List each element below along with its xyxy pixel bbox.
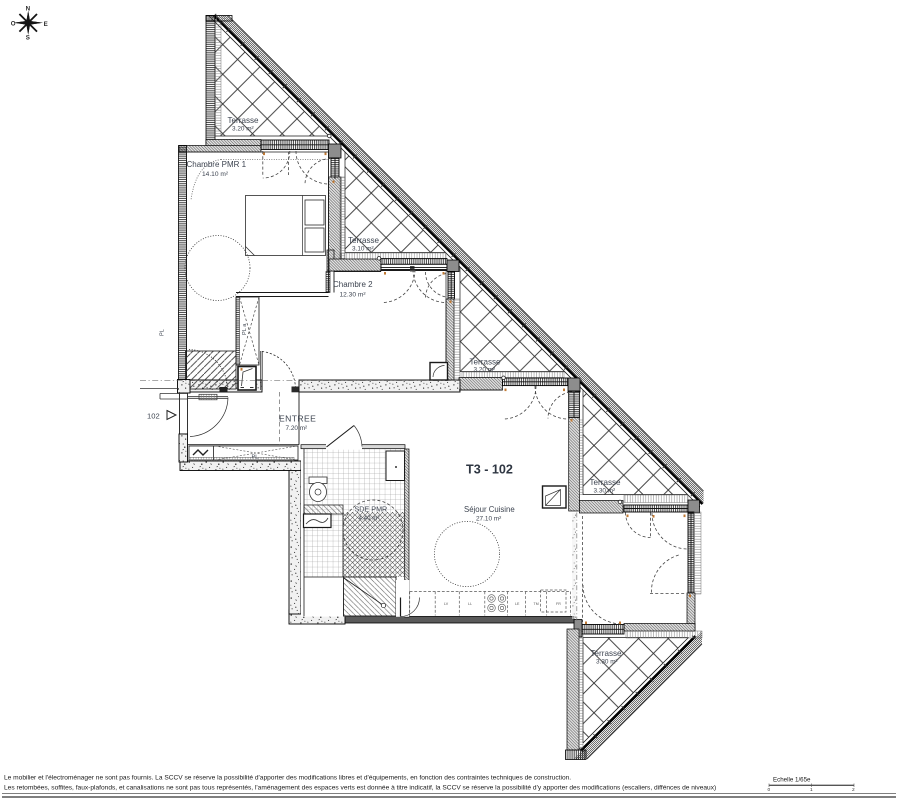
- svg-text:LV: LV: [444, 602, 449, 606]
- svg-text:SDE PMR: SDE PMR: [355, 505, 388, 514]
- svg-text:Le mobilier et l'électroménage: Le mobilier et l'électroménager ne sont …: [4, 774, 571, 781]
- svg-text:3.20 m²: 3.20 m²: [232, 126, 254, 133]
- svg-text:LL: LL: [468, 602, 472, 606]
- svg-text:12.30 m²: 12.30 m²: [340, 292, 367, 299]
- svg-text:Terrasse: Terrasse: [591, 649, 623, 658]
- svg-text:Les retombées, soffites, faux-: Les retombées, soffites, faux-plafonds, …: [4, 784, 716, 791]
- svg-text:O: O: [11, 21, 16, 28]
- svg-text:N: N: [26, 5, 31, 12]
- svg-text:ENTREE: ENTREE: [279, 414, 316, 424]
- svg-text:Chambre PMR 1: Chambre PMR 1: [187, 160, 247, 169]
- svg-text:Echelle 1/65e: Echelle 1/65e: [773, 777, 811, 784]
- svg-text:Terrasse: Terrasse: [470, 358, 502, 367]
- svg-text:E: E: [44, 21, 48, 28]
- svg-text:TM: TM: [534, 602, 539, 606]
- svg-text:3.30 m²: 3.30 m²: [594, 488, 616, 495]
- svg-text:3.20 m²: 3.20 m²: [474, 367, 496, 374]
- svg-text:3.30 m²: 3.30 m²: [596, 659, 618, 666]
- svg-text:PL a: PL a: [242, 323, 248, 335]
- svg-text:1: 1: [810, 787, 813, 793]
- svg-text:4.40 m²: 4.40 m²: [359, 515, 380, 522]
- svg-text:LE: LE: [515, 602, 520, 606]
- svg-text:7.20 m²: 7.20 m²: [286, 425, 308, 432]
- svg-text:2: 2: [852, 787, 855, 793]
- svg-text:PL: PL: [160, 329, 166, 336]
- svg-text:0: 0: [768, 787, 771, 793]
- svg-text:102: 102: [147, 412, 160, 421]
- svg-text:Terrasse: Terrasse: [228, 116, 260, 125]
- svg-text:3.10 m²: 3.10 m²: [352, 246, 374, 253]
- svg-text:PL: PL: [252, 455, 259, 461]
- svg-text:Chambre 2: Chambre 2: [333, 280, 373, 289]
- svg-text:FR: FR: [556, 602, 561, 606]
- svg-text:Séjour Cuisine: Séjour Cuisine: [464, 505, 515, 514]
- svg-text:27.10 m²: 27.10 m²: [476, 516, 501, 523]
- svg-text:T3 - 102: T3 - 102: [466, 463, 513, 477]
- svg-text:Terrasse: Terrasse: [590, 478, 622, 487]
- svg-text:S: S: [26, 35, 30, 42]
- svg-text:14.10 m²: 14.10 m²: [202, 171, 229, 178]
- svg-text:Terrasse: Terrasse: [348, 236, 380, 245]
